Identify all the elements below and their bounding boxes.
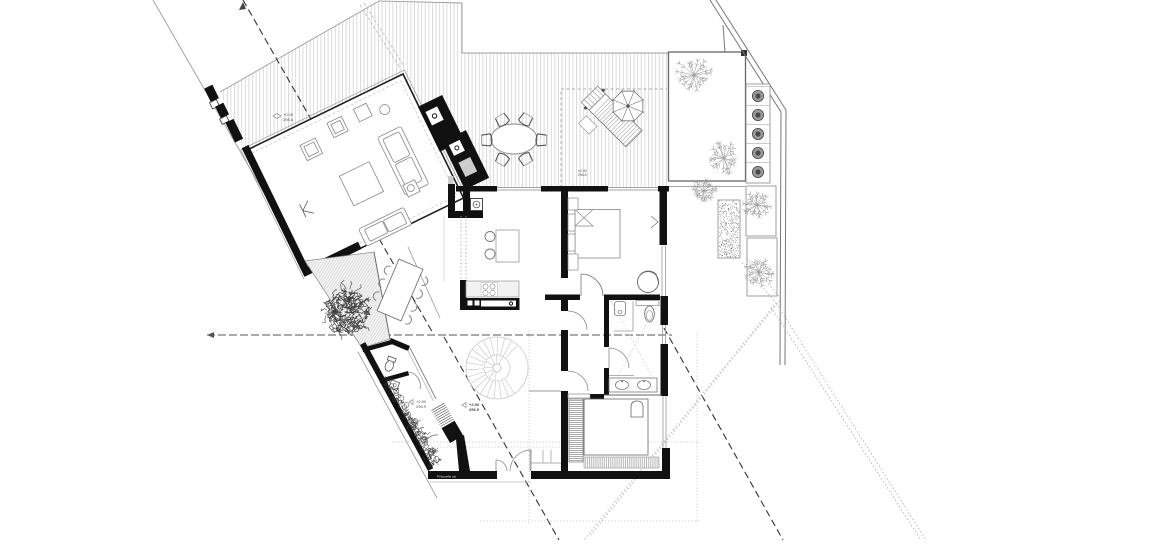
svg-text:296.9: 296.9 (416, 404, 427, 409)
svg-text:296.8: 296.8 (578, 173, 587, 177)
svg-text:298.8: 298.8 (283, 117, 294, 122)
svg-text:P.Nouvelle rdc: P.Nouvelle rdc (437, 475, 457, 479)
svg-text:296.9: 296.9 (469, 407, 480, 412)
